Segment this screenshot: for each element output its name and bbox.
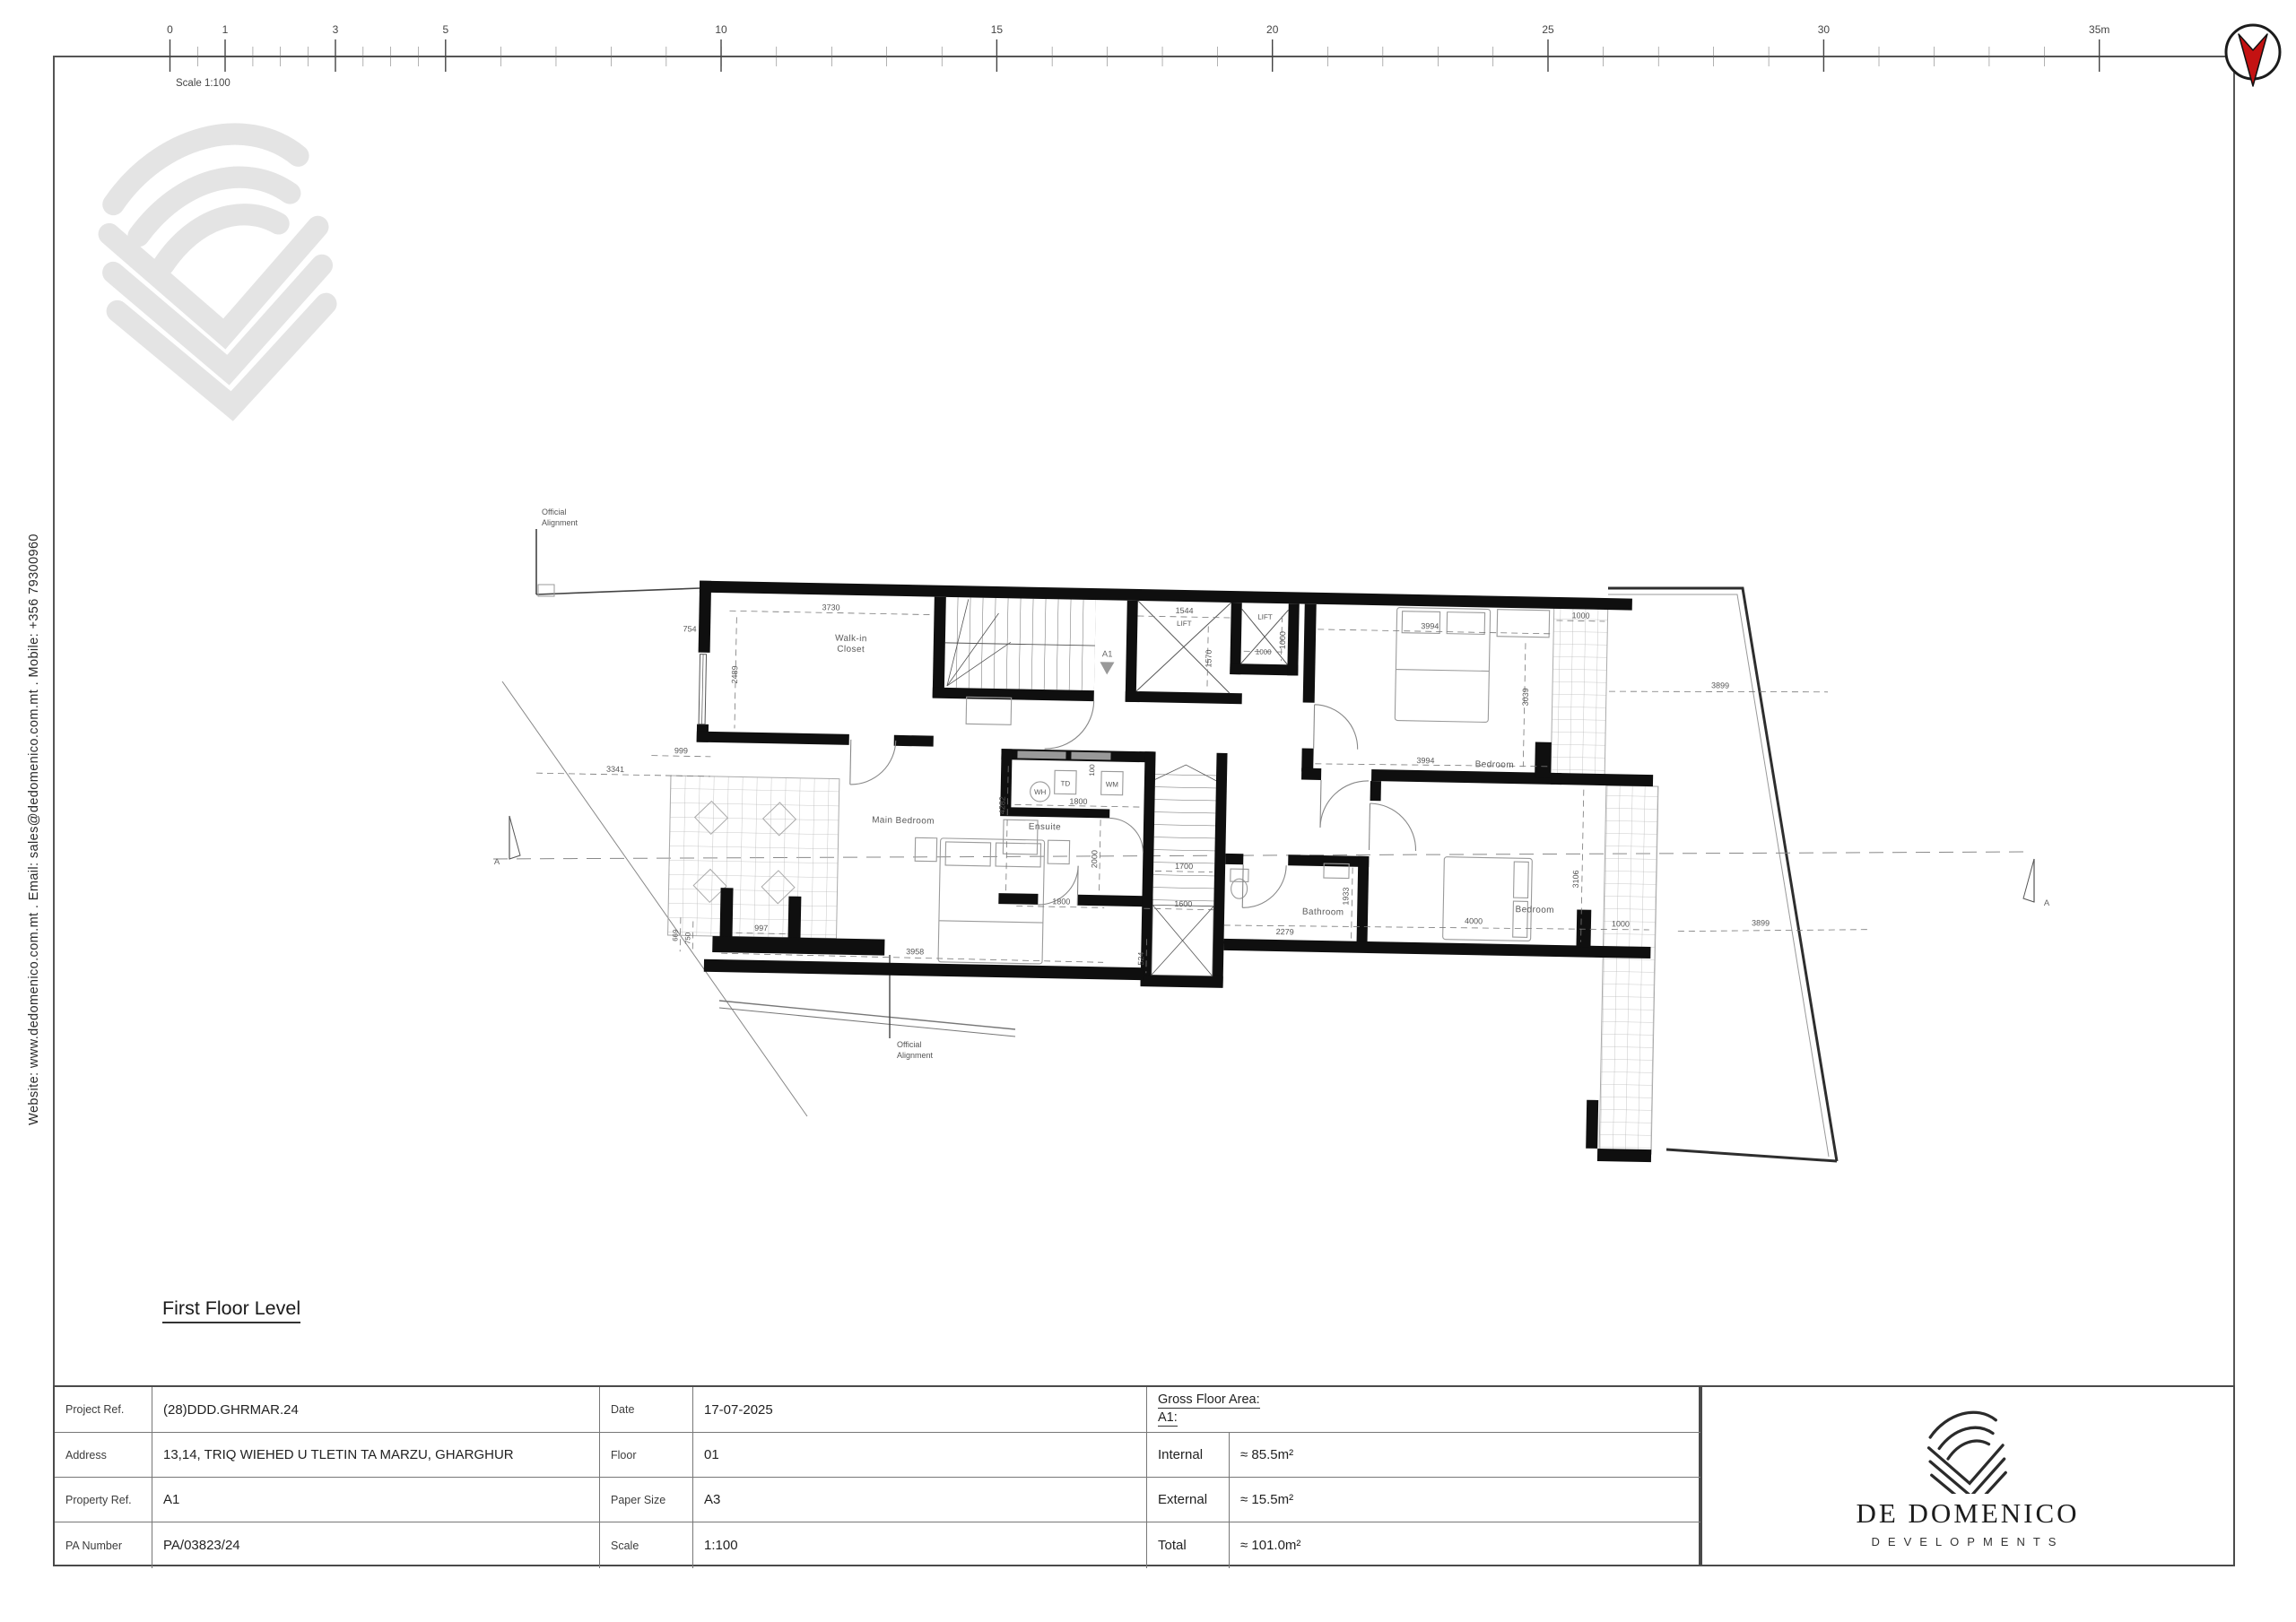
title-block: Project Ref. (28)DDD.GHRMAR.24 Date 17-0… [53,1385,1700,1566]
scale-ruler: 0 1 3 5 10 15 20 25 30 35m Scale 1:100 [167,23,2109,89]
room-label-lift: LIFT [1177,620,1192,628]
field-label: Address [55,1433,152,1478]
ruler-label: 5 [442,23,448,36]
field-value: A3 [693,1478,1147,1522]
ruler-label: 15 [991,23,1004,36]
floor-plan: A A Official Alignment Official Alignmen… [430,502,2081,1166]
dim-label: 1700 [1175,862,1193,871]
brand-tagline: DEVELOPMENTS [1872,1535,2065,1548]
dim-label: 669 [671,929,679,941]
official-alignment-label: Alignment [542,518,578,527]
doors [848,696,1418,912]
official-alignment-label: Official [542,507,566,516]
ruler-label: 10 [715,23,727,36]
dim-label: 3958 [906,947,924,956]
dim-label: 3994 [1421,621,1439,630]
appliance-label-wm: WM [1106,780,1119,788]
dim-label: 3039 [1521,688,1530,706]
ruler-label: 20 [1266,23,1279,36]
official-alignment-bottom: Official Alignment [897,1040,934,1060]
room-label-main-bedroom: Main Bedroom [872,815,935,826]
section-marker-a-right: A [2044,898,2050,908]
appliance-label-td: TD [1060,779,1070,787]
field-value: 1:100 [693,1522,1147,1568]
gfa-row-value: ≈ 85.5m² [1230,1433,1702,1478]
gfa-row-label: Internal [1147,1433,1230,1478]
field-value: PA/03823/24 [152,1522,600,1568]
dim-label: 1800 [1069,797,1087,806]
dim-label: 1000 [1571,611,1589,620]
dim-label: 2000 [1090,850,1099,868]
ruler-label: 3 [333,23,339,36]
room-label-walk-in-closet: Closet [837,645,865,655]
brand-name: DE DOMENICO [1856,1497,2079,1530]
room-label-bathroom: Bathroom [1302,907,1344,918]
dim-label: 3730 [822,603,839,612]
field-label: Floor [600,1433,693,1478]
field-value: 13,14, TRIQ WIEHED U TLETIN TA MARZU, GH… [152,1433,600,1478]
watermark-logo [100,126,336,417]
building: 3730 754 2489 999 3341 1544 1570 1000 10… [529,577,1874,1166]
dim-label: 3899 [1711,681,1729,690]
ruler-label: 0 [167,23,173,36]
dim-label: 1000 [1278,631,1287,649]
north-arrow-icon [2226,25,2280,86]
ruler-label: 30 [1818,23,1831,36]
dim-label: 1600 [1174,899,1192,908]
dim-label: 2279 [1276,927,1294,936]
staircase-upper [944,597,1096,690]
company-logo-box: DE DOMENICO DEVELOPMENTS [1700,1385,2235,1566]
gfa-title: Gross Floor Area: [1158,1392,1260,1409]
ruler-tick-labels: 0 1 3 5 10 15 20 25 30 35m [167,23,2109,36]
room-label-walk-in-closet: Walk-in [835,634,867,645]
a1-label: A1 [1102,649,1113,659]
a1-marker: A1 [1100,649,1115,674]
dim-label: 524 [1136,952,1145,966]
dim-label: 3994 [1416,756,1434,765]
gfa-unit: A1: [1158,1410,1178,1427]
field-label: Project Ref. [55,1387,152,1433]
dim-label: 754 [683,624,696,633]
sheet-header-graphics: 0 1 3 5 10 15 20 25 30 35m Scale 1:100 [0,0,2296,502]
gfa-row-label: Total [1147,1522,1230,1568]
dim-label: 4282 [997,796,1006,814]
field-label: Property Ref. [55,1478,152,1522]
dim-label: 1800 [1052,897,1070,906]
gfa-row-value: ≈ 101.0m² [1230,1522,1702,1568]
dim-label: 3899 [1752,918,1770,927]
dim-label: 1544 [1175,606,1193,615]
field-value: 17-07-2025 [693,1387,1147,1433]
dim-label: 2489 [730,665,739,683]
dim-label: 999 [674,746,688,755]
company-logo-icon [1909,1404,2026,1494]
official-alignment-label: Alignment [897,1051,934,1060]
dim-label: 997 [754,924,768,932]
field-label: PA Number [55,1522,152,1568]
ruler-label: 1 [222,23,229,36]
field-value: 01 [693,1433,1147,1478]
dim-label: 750 [683,932,691,944]
room-label-bedroom-bottom: Bedroom [1515,905,1554,915]
official-alignment-top: Official Alignment [542,507,578,527]
section-marker-a-left: A [494,857,500,867]
dim-label: 1570 [1204,649,1213,667]
dim-label: 100 [1088,764,1096,776]
dim-label: 1000 [1256,648,1273,656]
ruler-label: 35m [2089,23,2109,36]
dim-label: 3341 [606,765,624,774]
dim-label: 3106 [1571,870,1580,888]
field-label: Scale [600,1522,693,1568]
official-alignment-label: Official [897,1040,921,1049]
ruler-label: 25 [1542,23,1554,36]
gross-floor-area-header: Gross Floor Area: A1: [1147,1387,1702,1433]
contact-info: Website: www.dedomenico.com.mt . Email: … [27,533,41,1125]
gfa-row-label: External [1147,1478,1230,1522]
scale-label: Scale 1:100 [176,78,230,89]
field-label: Date [600,1387,693,1433]
dim-label: 4000 [1465,916,1483,925]
room-label-ensuite: Ensuite [1029,822,1061,833]
field-label: Paper Size [600,1478,693,1522]
room-label-lift: LIFT [1257,613,1273,621]
appliance-label-wh: WH [1034,788,1047,796]
dim-label: 1000 [1612,919,1630,928]
dim-label: 1933 [1341,887,1350,905]
room-label-bedroom-top: Bedroom [1475,759,1515,770]
field-value: (28)DDD.GHRMAR.24 [152,1387,600,1433]
page-title: First Floor Level [162,1297,300,1323]
gfa-row-value: ≈ 15.5m² [1230,1478,1702,1522]
field-value: A1 [152,1478,600,1522]
